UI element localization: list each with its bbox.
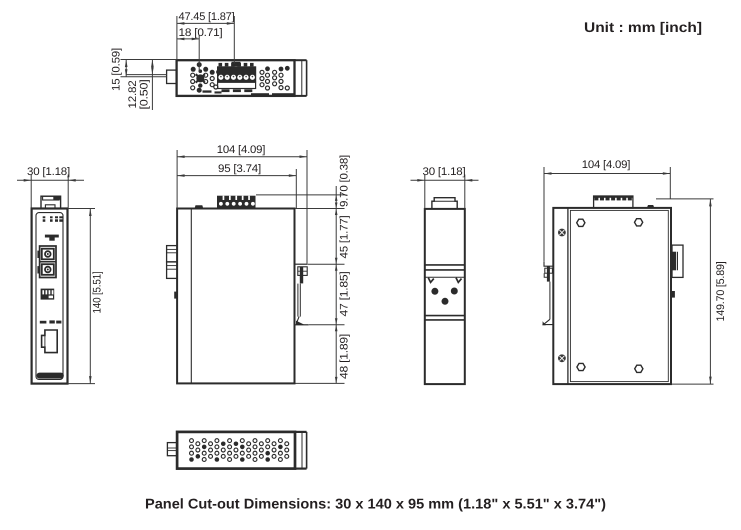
svg-text:104 [4.09]: 104 [4.09] [582, 159, 631, 171]
svg-text:12.82: 12.82 [127, 80, 139, 108]
svg-text:149.70 [5.89]: 149.70 [5.89] [715, 261, 727, 321]
svg-text:104 [4.09]: 104 [4.09] [217, 144, 266, 156]
svg-text:48 [1.89]: 48 [1.89] [339, 334, 351, 379]
svg-text:18 [0.71]: 18 [0.71] [179, 27, 223, 39]
svg-text:Unit : mm [inch]: Unit : mm [inch] [584, 19, 702, 35]
svg-text:15 [0.59]: 15 [0.59] [111, 48, 123, 91]
svg-text:45 [1.77]: 45 [1.77] [339, 215, 351, 258]
svg-text:95 [3.74]: 95 [3.74] [218, 163, 261, 175]
svg-text:Panel Cut-out Dimensions: 30 x: Panel Cut-out Dimensions: 30 x 140 x 95 … [145, 497, 606, 513]
svg-text:[0.50]: [0.50] [139, 79, 151, 109]
svg-text:140 [5.51]: 140 [5.51] [92, 271, 104, 313]
svg-text:30 [1.18]: 30 [1.18] [423, 166, 466, 178]
svg-text:47.45 [1.87]: 47.45 [1.87] [179, 11, 235, 23]
svg-text:30 [1.18]: 30 [1.18] [27, 166, 70, 178]
svg-text:47 [1.85]: 47 [1.85] [339, 271, 351, 316]
svg-text:9.70 [0.38]: 9.70 [0.38] [339, 155, 351, 207]
